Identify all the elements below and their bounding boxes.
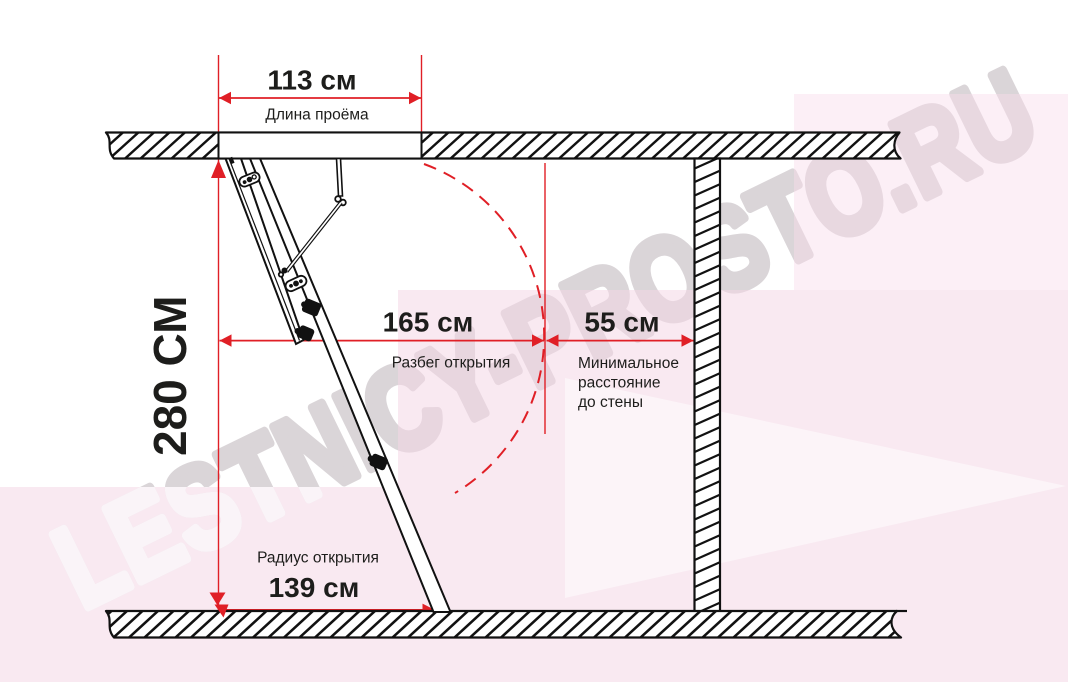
svg-text:Длина проёма: Длина проёма [265, 107, 369, 124]
svg-text:Радиус открытия: Радиус открытия [257, 550, 379, 567]
svg-text:55 см: 55 см [584, 307, 659, 338]
svg-text:расстояние: расстояние [578, 375, 661, 392]
svg-text:165 см: 165 см [383, 307, 474, 338]
svg-text:Минимальное: Минимальное [578, 355, 679, 372]
svg-text:139 см: 139 см [269, 572, 360, 603]
svg-text:Разбег открытия: Разбег открытия [392, 355, 511, 372]
svg-text:280 СМ: 280 СМ [144, 296, 196, 456]
svg-text:до стены: до стены [578, 394, 643, 411]
svg-text:113 см: 113 см [267, 65, 356, 96]
